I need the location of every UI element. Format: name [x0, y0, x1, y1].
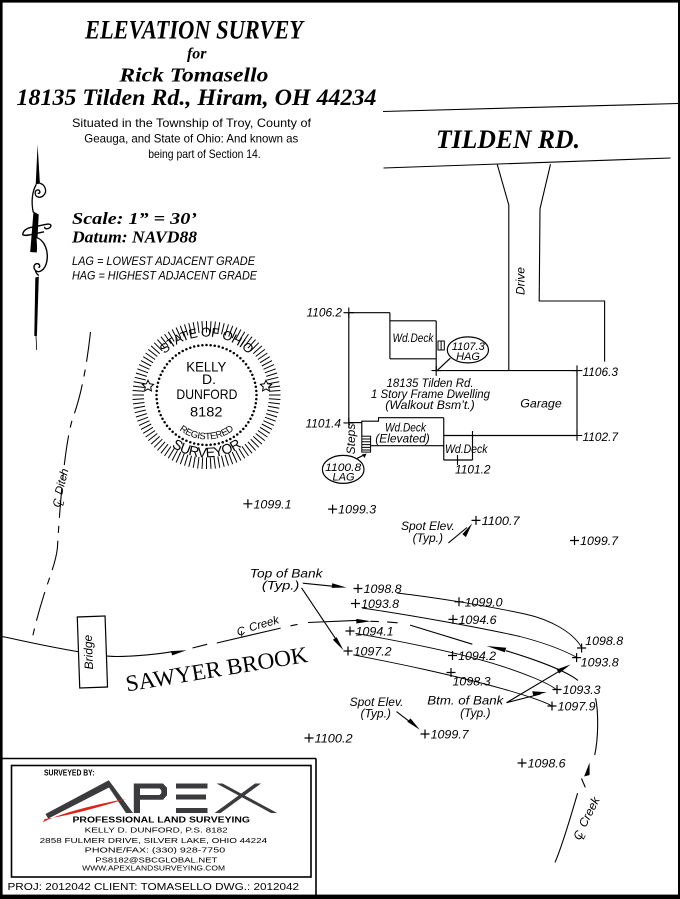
- svg-text:SURVEYED BY:: SURVEYED BY:: [44, 769, 95, 778]
- svg-text:WWW.APEXLANDSURVEYING.COM: WWW.APEXLANDSURVEYING.COM: [82, 864, 225, 873]
- svg-text:Creek: Creek: [576, 794, 603, 830]
- svg-text:Wd.Deck: Wd.Deck: [393, 331, 435, 345]
- svg-text:1101.4: 1101.4: [306, 417, 342, 431]
- svg-text:8182: 8182: [190, 403, 223, 419]
- svg-text:18135 Tilden Rd., Hiram, O: 18135 Tilden Rd., Hiram, OH 44234: [17, 85, 377, 110]
- svg-text:1094.2: 1094.2: [458, 649, 496, 663]
- svg-text:(Typ.): (Typ.): [262, 579, 300, 593]
- svg-text:1106.2: 1106.2: [307, 306, 343, 320]
- svg-text:(Typ.): (Typ.): [413, 531, 443, 545]
- svg-text:being part of Section 14.: being part of Section 14.: [148, 148, 261, 161]
- svg-text:1100.2: 1100.2: [315, 732, 353, 746]
- svg-text:1093.3: 1093.3: [563, 683, 601, 697]
- svg-text:Rick Tomasello: Rick Tomasello: [118, 65, 268, 87]
- svg-text:1101.2: 1101.2: [455, 463, 491, 477]
- svg-text:Garage: Garage: [520, 397, 562, 411]
- svg-text:1098.8: 1098.8: [585, 634, 623, 648]
- svg-text:SAWYER BROOK: SAWYER BROOK: [124, 642, 310, 696]
- svg-text:STATE OF OHIO: STATE OF OHIO: [156, 325, 256, 357]
- svg-text:Drive: Drive: [514, 267, 528, 295]
- svg-text:HAG: HAG: [456, 351, 480, 363]
- svg-text:1102.7: 1102.7: [583, 430, 620, 444]
- svg-text:1099.3: 1099.3: [338, 503, 376, 517]
- svg-text:Ditch: Ditch: [53, 468, 71, 496]
- svg-text:HAG = HIGHEST ADJACENT GRADE: HAG = HIGHEST ADJACENT GRADE: [72, 270, 257, 283]
- svg-text:(Walkout Bsm’t.): (Walkout Bsm’t.): [385, 398, 475, 412]
- svg-text:(Typ.): (Typ.): [460, 706, 490, 720]
- svg-text:1093.8: 1093.8: [581, 656, 619, 670]
- svg-text:LAG: LAG: [332, 472, 354, 484]
- svg-text:Geauga, and State of Ohio: And: Geauga, and State of Ohio: And known as: [84, 133, 298, 146]
- svg-text:1099.7: 1099.7: [431, 728, 470, 742]
- svg-text:Bridge: Bridge: [81, 634, 96, 669]
- svg-text:1098.3: 1098.3: [453, 675, 491, 689]
- svg-text:1097.9: 1097.9: [558, 700, 596, 714]
- svg-text:1098.8: 1098.8: [364, 582, 402, 596]
- svg-text:(Typ.): (Typ.): [360, 707, 390, 721]
- svg-text:2858 FULMER DRIVE, SILVER LAKE: 2858 FULMER DRIVE, SILVER LAKE, OHIO 442…: [40, 836, 268, 845]
- svg-text:1098.6: 1098.6: [528, 757, 566, 771]
- svg-text:ELEVATION SURVEY: ELEVATION SURVEY: [84, 15, 305, 45]
- svg-text:DUNFORD: DUNFORD: [176, 386, 237, 402]
- svg-text:1099.1: 1099.1: [254, 497, 292, 511]
- svg-text:(Elevated): (Elevated): [375, 432, 430, 446]
- svg-text:for: for: [187, 46, 207, 63]
- svg-text:TILDEN RD.: TILDEN RD.: [436, 125, 580, 154]
- svg-text:LAG = LOWEST ADJACENT GRADE: LAG = LOWEST ADJACENT GRADE: [72, 255, 255, 268]
- svg-text:PROJ: 2012042 CLIENT: TOMASEL: PROJ: 2012042 CLIENT: TOMASELLO DWG.: 20…: [8, 882, 300, 893]
- svg-text:Scale: 1” = 30’: Scale: 1” = 30’: [72, 209, 197, 228]
- svg-text:1099.7: 1099.7: [580, 534, 619, 548]
- svg-text:PHONE/FAX: (330) 928-7750: PHONE/FAX: (330) 928-7750: [85, 845, 226, 854]
- svg-text:KELLY D. DUNFORD, P.S. 8182: KELLY D. DUNFORD, P.S. 8182: [85, 825, 228, 834]
- svg-text:Steps: Steps: [344, 424, 358, 455]
- svg-text:1106.3: 1106.3: [583, 365, 619, 379]
- svg-text:Situated in the Township of Tr: Situated in the Township of Troy, County…: [72, 117, 312, 130]
- svg-text:1099.0: 1099.0: [465, 595, 503, 609]
- svg-text:PROFESSIONAL LAND SURVEYING: PROFESSIONAL LAND SURVEYING: [73, 814, 251, 824]
- svg-text:D.: D.: [202, 371, 216, 387]
- svg-text:Datum: NAVD88: Datum: NAVD88: [71, 228, 198, 247]
- svg-text:Wd.Deck: Wd.Deck: [445, 442, 488, 456]
- svg-text:1100.7: 1100.7: [482, 514, 521, 528]
